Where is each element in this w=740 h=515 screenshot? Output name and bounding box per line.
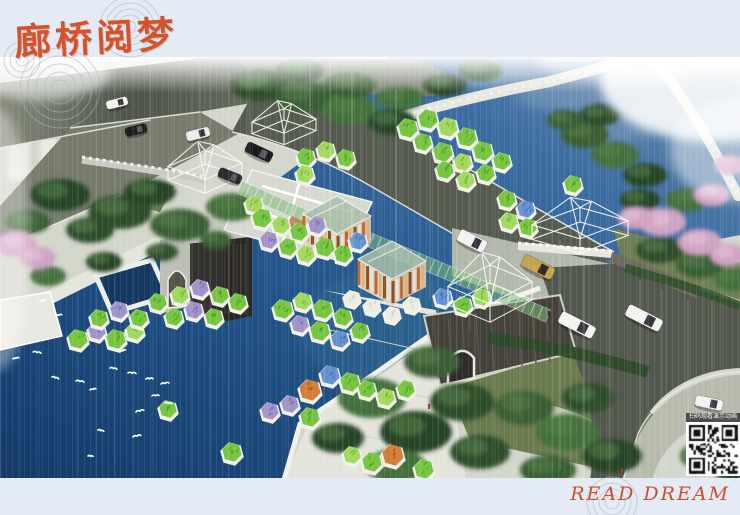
aerial-rendering <box>0 57 740 478</box>
qr-caption: 扫码观看演示动画 <box>686 413 740 422</box>
poster: 廊桥阅梦 READ DREAM 扫码观看演示动画 <box>0 0 740 515</box>
slogan-text: READ DREAM <box>570 483 730 505</box>
qr-code: 扫码观看演示动画 <box>686 413 740 476</box>
qr-image <box>686 422 740 476</box>
title-calligraphy: 廊桥阅梦 <box>13 4 180 67</box>
